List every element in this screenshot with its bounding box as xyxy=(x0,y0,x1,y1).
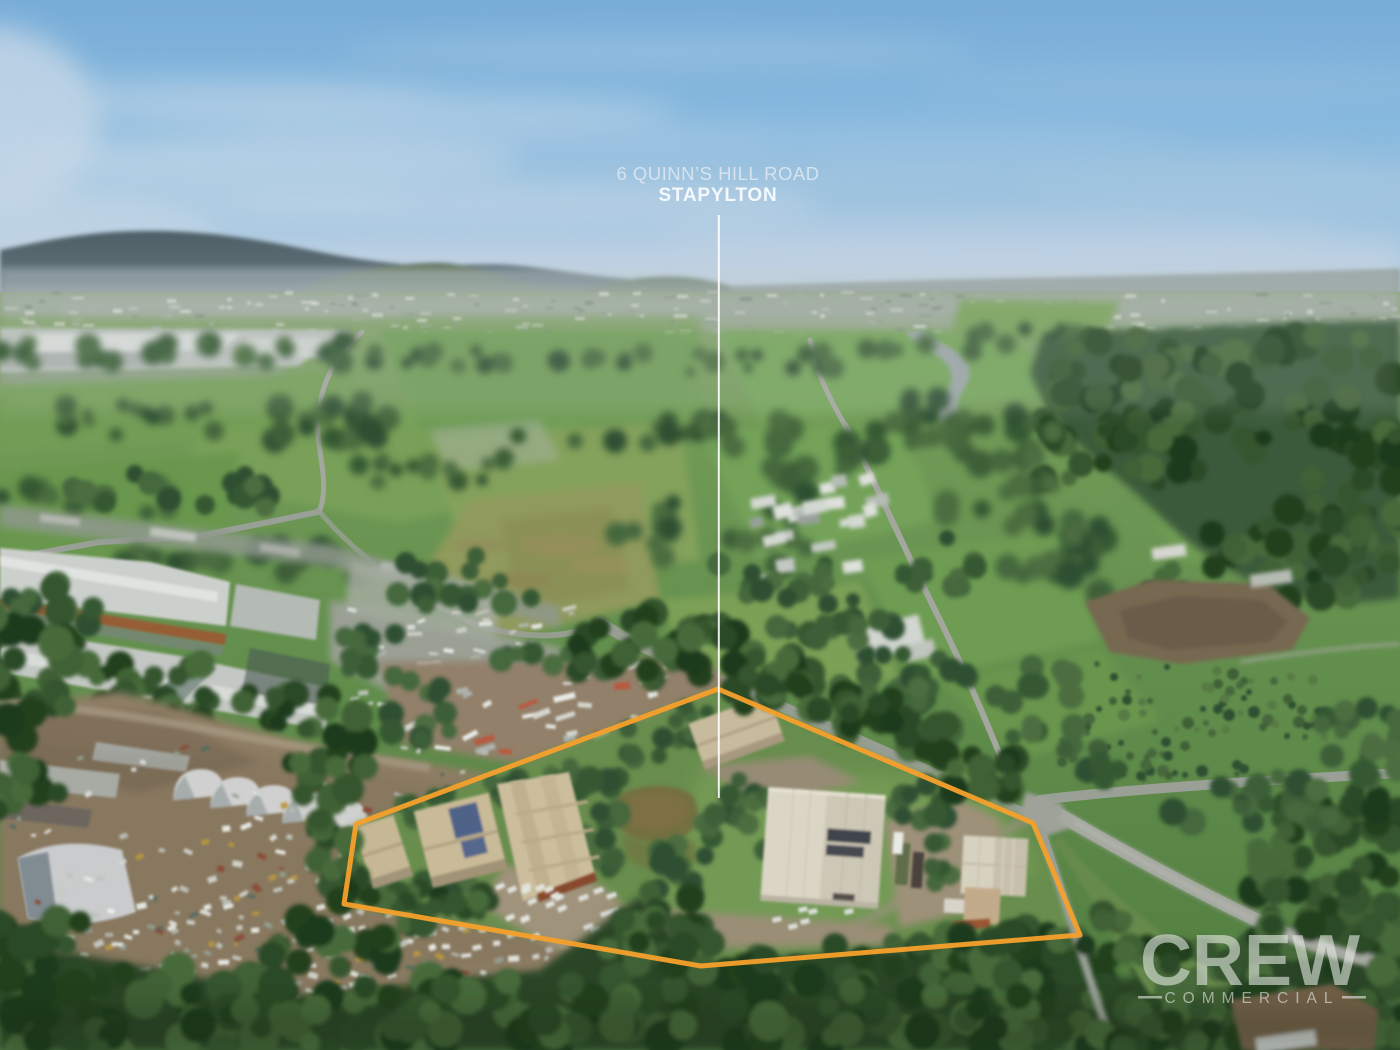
svg-text:CREW: CREW xyxy=(1140,921,1360,1001)
svg-text:6 QUINN’S HILL ROAD: 6 QUINN’S HILL ROAD xyxy=(616,163,819,184)
svg-text:STAPYLTON: STAPYLTON xyxy=(658,185,777,206)
svg-text:COMMERCIAL: COMMERCIAL xyxy=(1164,990,1339,1007)
